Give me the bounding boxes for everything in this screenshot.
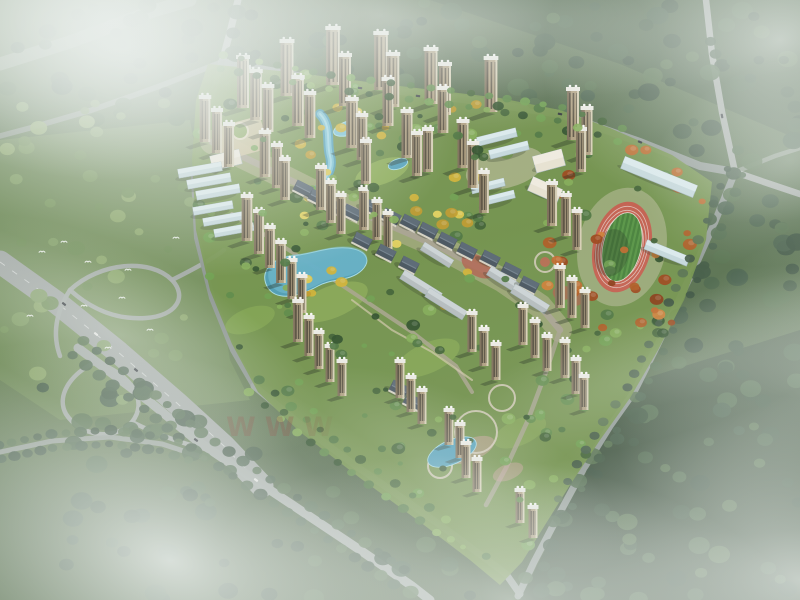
tree [739, 172, 746, 178]
tree [384, 93, 393, 101]
tree [672, 471, 686, 482]
tower-lit-edge [232, 125, 234, 167]
rooftop-unit [531, 317, 534, 320]
tree [20, 436, 29, 443]
tower-window-stripe [523, 310, 525, 342]
tower-roof-cap [411, 131, 423, 135]
tower-roof-cap [515, 488, 526, 492]
rooftop-unit [401, 357, 404, 360]
tree [0, 441, 4, 450]
tower-window-stripe [482, 333, 484, 363]
tower-lit-edge [305, 277, 307, 313]
rooftop-unit [418, 129, 421, 132]
tree [45, 199, 56, 208]
tower-window-stripe [292, 264, 294, 296]
tree [628, 438, 639, 447]
tree [695, 568, 707, 578]
tree [277, 415, 285, 422]
tree [668, 320, 675, 326]
tree [304, 589, 324, 600]
tree-highlight [580, 441, 585, 445]
tree [399, 565, 410, 574]
tree-highlight [466, 220, 471, 224]
tree [303, 222, 308, 226]
tree [317, 427, 324, 433]
tower-roof-cap [472, 457, 483, 461]
tree [417, 114, 422, 118]
tree [644, 341, 653, 349]
tower-window-stripe [414, 137, 416, 173]
tree [398, 504, 409, 513]
tree [618, 125, 627, 132]
tree [284, 303, 291, 308]
tree [307, 82, 315, 89]
tower-window-stripe [319, 336, 321, 366]
tower-window-stripe [282, 163, 284, 197]
tower-lit-edge [397, 55, 399, 107]
tree [782, 478, 794, 488]
tree [8, 451, 20, 461]
tree [48, 444, 58, 452]
tree-highlight [482, 154, 487, 158]
tree [386, 289, 394, 295]
tower-window-stripe [338, 199, 340, 231]
tree [581, 90, 596, 102]
tree [332, 335, 343, 344]
tower-roof-cap [314, 330, 325, 334]
tower-roof-cap [479, 327, 490, 331]
tower-roof-cap [259, 130, 272, 134]
tree [543, 539, 560, 553]
rooftop-unit [342, 191, 345, 194]
tower-window-stripe [277, 149, 279, 185]
tree [748, 12, 759, 21]
tree [699, 299, 716, 312]
tree [549, 475, 559, 483]
tree [699, 198, 706, 204]
tree [727, 55, 742, 67]
tree [737, 370, 750, 380]
tree [228, 5, 246, 20]
tree [500, 109, 509, 116]
tree [343, 511, 359, 524]
tower-roof-cap [406, 375, 417, 379]
tree-highlight [661, 330, 666, 334]
rooftop-unit [335, 24, 338, 27]
tree [594, 331, 600, 336]
tower-lit-edge [273, 228, 275, 268]
tower-lit-edge [446, 89, 448, 133]
tower-roof-cap [400, 109, 413, 113]
rooftop-unit [459, 117, 462, 120]
tree-highlight [411, 335, 416, 339]
tower-roof-cap [335, 193, 346, 197]
tower-window-stripe [342, 365, 344, 393]
tree-highlight [479, 222, 484, 226]
tower-roof-cap [424, 47, 439, 51]
tree [71, 492, 93, 509]
tree [594, 454, 605, 463]
tree [718, 361, 733, 373]
tower-roof-cap [337, 359, 348, 363]
rooftop-unit [413, 129, 416, 132]
tree [365, 91, 372, 97]
rooftop-unit [389, 209, 392, 212]
rooftop-unit [447, 60, 450, 63]
tree [558, 104, 566, 111]
tower-window-stripe [585, 295, 587, 325]
tree [277, 304, 283, 308]
tree [613, 138, 622, 145]
tree-highlight [583, 211, 589, 216]
rooftop-unit [248, 192, 251, 195]
tree [139, 405, 150, 413]
tree [228, 472, 237, 479]
rooftop-unit [553, 179, 556, 182]
tree-highlight [309, 152, 314, 156]
tower-window-stripe [469, 317, 471, 349]
tower-window-stripe [359, 119, 361, 157]
tree-highlight [340, 279, 346, 283]
tree [63, 510, 83, 526]
tower-window-stripe [563, 345, 565, 375]
tree [358, 537, 371, 548]
rooftop-unit [367, 137, 370, 140]
tree [441, 515, 451, 523]
rooftop-unit [412, 373, 415, 376]
tree [637, 355, 646, 362]
tree [689, 144, 705, 157]
tree [529, 22, 541, 32]
tower-window-stripe [552, 187, 554, 223]
tower-window-stripe [384, 83, 386, 123]
tree [306, 438, 316, 446]
tree [374, 468, 382, 475]
tree [292, 66, 299, 71]
tree [492, 101, 503, 110]
tree [273, 62, 282, 69]
tower-window-stripe [545, 340, 547, 368]
rooftop-unit [327, 178, 330, 181]
tree [465, 104, 472, 110]
tower-window-stripe [289, 264, 291, 296]
tower-window-stripe [565, 345, 567, 375]
tower-lit-edge [499, 345, 501, 380]
tower-window-stripe [581, 133, 583, 169]
tower-window-stripe [587, 112, 589, 152]
tree [779, 56, 789, 64]
tree [638, 83, 660, 101]
tower-lit-edge [334, 183, 336, 223]
tower-lit-edge [260, 72, 262, 120]
tower-roof-cap [373, 31, 388, 35]
tower-window-stripe [470, 147, 472, 185]
tower-window-stripe [306, 321, 308, 353]
tree [105, 441, 113, 448]
tree [709, 200, 719, 208]
tower-lit-edge [487, 173, 489, 213]
rooftop-unit [485, 325, 488, 328]
tree [440, 3, 462, 20]
rooftop-unit [586, 287, 589, 290]
tree [416, 537, 436, 553]
tree [82, 282, 92, 290]
tree-highlight [450, 209, 456, 213]
tree [708, 243, 717, 250]
tower-window-stripe [398, 365, 400, 395]
tree [74, 150, 86, 160]
tree [61, 429, 70, 436]
tree [159, 486, 177, 500]
tree [62, 443, 72, 451]
tower-roof-cap [566, 87, 580, 91]
rooftop-unit [347, 51, 350, 54]
tower-window-stripe [267, 231, 269, 265]
tree [106, 538, 119, 548]
rooftop-unit [376, 29, 379, 32]
tree [272, 539, 284, 548]
tree [130, 443, 141, 452]
tree [390, 479, 401, 488]
tree [604, 266, 615, 275]
tree [741, 153, 762, 170]
rooftop-unit [343, 357, 346, 360]
tower-window-stripe [388, 217, 390, 247]
tower-window-stripe [352, 103, 354, 145]
tower-lit-edge [526, 307, 528, 345]
rooftop-unit [252, 67, 255, 70]
tree [90, 100, 100, 108]
tower-window-stripe [202, 101, 204, 139]
tower-window-stripe [427, 53, 429, 101]
tower-lit-edge [324, 168, 326, 210]
tower-window-stripe [270, 231, 272, 265]
tower-window-stripe [386, 217, 388, 247]
tower-roof-cap [546, 181, 558, 185]
tower-lit-edge [587, 377, 589, 410]
tree [118, 427, 130, 437]
tower-window-stripe [309, 321, 311, 353]
tree [669, 327, 677, 334]
rooftop-unit [480, 325, 483, 328]
tree [158, 29, 177, 44]
tree [655, 321, 663, 327]
tower-window-stripe [244, 200, 246, 238]
tree [728, 340, 743, 352]
tree [383, 387, 388, 391]
tree [568, 56, 584, 69]
tower-window-stripe [407, 115, 409, 155]
rooftop-unit [266, 223, 269, 226]
tree-highlight [340, 351, 345, 355]
tree [638, 451, 653, 463]
tree [449, 414, 456, 420]
tree [658, 348, 668, 356]
tower-roof-cap [455, 422, 466, 426]
tree [464, 274, 475, 283]
tree [374, 570, 387, 581]
tower-lit-edge [425, 391, 427, 424]
tower-window-stripe [463, 125, 465, 165]
tower-lit-edge [475, 314, 477, 352]
tree [651, 238, 658, 244]
rooftop-unit [255, 207, 258, 210]
tree-highlight [453, 174, 458, 178]
tower-roof-cap [241, 194, 254, 198]
tree [252, 266, 259, 271]
tree [304, 501, 318, 512]
tower-roof-cap [386, 52, 400, 56]
tree [372, 388, 380, 395]
tower-roof-cap [517, 304, 528, 308]
tower-roof-cap [528, 505, 539, 509]
tree [116, 112, 126, 120]
tower-roof-cap [279, 157, 291, 161]
tree-highlight [469, 130, 475, 135]
tree [485, 92, 494, 99]
rooftop-unit [378, 197, 381, 200]
tree [573, 124, 583, 132]
tree [150, 390, 162, 400]
tower-roof-cap [383, 211, 394, 215]
tower-roof-cap [530, 319, 541, 323]
tree [134, 385, 153, 400]
tower-lit-edge [301, 302, 303, 342]
rooftop-unit [261, 128, 264, 131]
tower-window-stripe [321, 171, 323, 207]
tree [361, 561, 374, 572]
tree [754, 25, 770, 38]
tree [713, 403, 732, 418]
tree [346, 74, 355, 81]
rooftop-unit [480, 168, 483, 171]
tree [310, 408, 318, 415]
tree [447, 536, 455, 543]
tree [409, 194, 418, 202]
tower-window-stripe [243, 61, 245, 105]
tree-highlight [439, 347, 444, 351]
tree [105, 356, 116, 365]
tree [643, 68, 663, 84]
tree [650, 362, 662, 371]
rooftop-unit [485, 168, 488, 171]
tree [447, 87, 455, 93]
tower-window-stripe [403, 115, 405, 155]
rooftop-unit [354, 95, 357, 98]
rooftop-unit [332, 178, 335, 181]
tree [254, 375, 265, 384]
rooftop-unit [461, 420, 464, 423]
tower-window-stripe [274, 149, 276, 185]
tree [589, 2, 600, 11]
tree [757, 433, 773, 446]
tree [760, 562, 776, 575]
tree-highlight [556, 257, 561, 261]
tree [732, 145, 744, 154]
tree [740, 380, 761, 397]
tree [122, 188, 135, 198]
tower-window-stripe [377, 205, 379, 237]
tower-window-stripe [420, 394, 422, 421]
tree [110, 210, 126, 223]
tree-highlight [546, 282, 551, 286]
rooftop-unit [363, 111, 366, 114]
tree [92, 370, 106, 381]
tree [418, 0, 430, 8]
rooftop-unit [562, 191, 565, 194]
tree [222, 446, 235, 457]
tree [374, 548, 383, 555]
tower-lit-edge [523, 491, 525, 523]
tree-highlight [539, 411, 544, 415]
rooftop-unit [305, 313, 308, 316]
tree [710, 49, 722, 58]
tree [156, 447, 164, 454]
rooftop-unit [206, 93, 209, 96]
tower-window-stripe [283, 45, 285, 93]
tree [161, 423, 173, 432]
rooftop-unit [373, 197, 376, 200]
tree [554, 118, 562, 124]
tree [277, 483, 291, 494]
tree [205, 498, 216, 506]
tower-lit-edge [414, 378, 416, 412]
rooftop-unit [573, 207, 576, 210]
rooftop-unit [337, 191, 340, 194]
tree-highlight [507, 415, 513, 420]
tree [564, 178, 573, 185]
tower-window-stripe [285, 163, 287, 197]
tree [145, 431, 155, 439]
rooftop-unit [492, 340, 495, 343]
rooftop-unit [456, 420, 459, 423]
tree [105, 379, 119, 390]
tree [83, 170, 98, 182]
tree [594, 503, 610, 516]
tree [34, 446, 46, 456]
tower-roof-cap [571, 357, 582, 361]
rooftop-unit [218, 106, 221, 109]
tree [343, 446, 351, 452]
tower-window-stripe [361, 193, 363, 227]
tower-window-stripe [265, 90, 267, 129]
tree [608, 280, 616, 286]
tree [629, 370, 640, 379]
tree [336, 544, 347, 553]
tree [219, 559, 230, 568]
tree [690, 475, 710, 491]
tree [548, 567, 566, 582]
tree [680, 307, 687, 313]
tree-highlight [417, 490, 422, 494]
rooftop-unit [408, 107, 411, 110]
tree [168, 451, 180, 460]
tower-window-stripe [287, 45, 289, 93]
tree [238, 56, 245, 62]
rooftop-unit [561, 263, 564, 266]
tower-window-stripe [577, 215, 579, 247]
tree [271, 390, 280, 397]
tree [700, 64, 720, 80]
tree [585, 81, 597, 91]
tower-roof-cap [467, 141, 480, 145]
tree [578, 486, 585, 492]
tree [168, 112, 185, 125]
tree [686, 291, 695, 298]
rooftop-unit [213, 106, 216, 109]
tower-window-stripe [341, 199, 343, 231]
tree [591, 577, 606, 589]
